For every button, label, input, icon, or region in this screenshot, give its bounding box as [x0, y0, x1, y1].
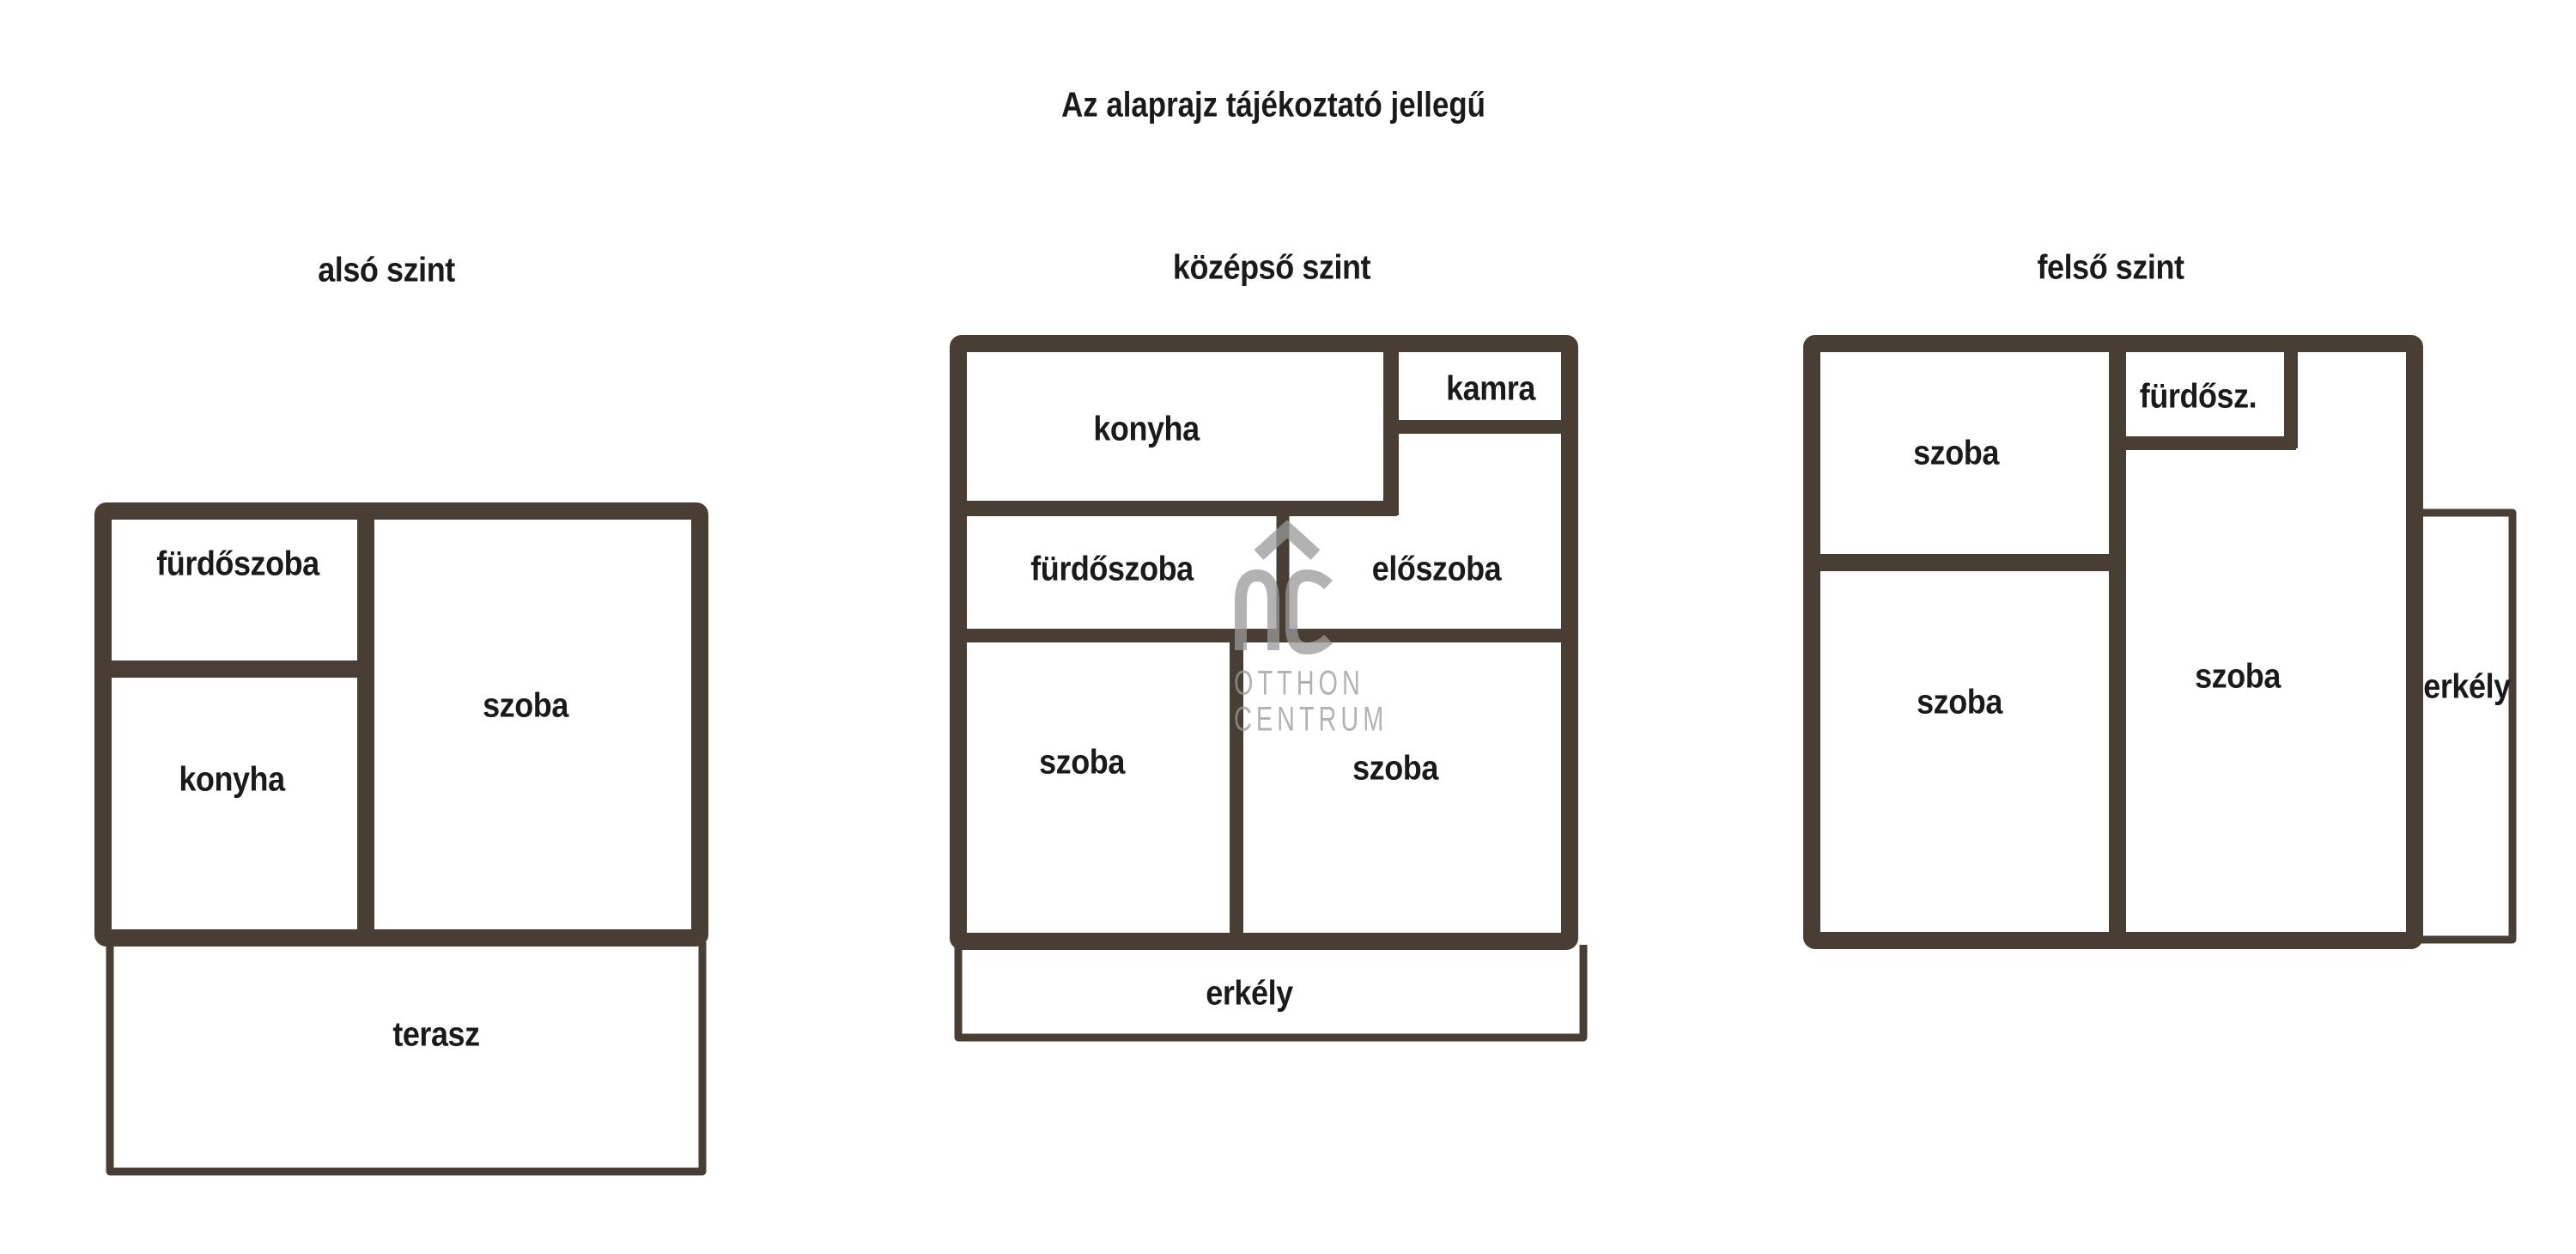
middle-erkely-wall: [958, 945, 1583, 1038]
floorplan-canvas: Az alaprajz tájékoztató jellegű: [0, 0, 2576, 1254]
floorplan-walls: [0, 0, 2576, 1254]
lower-outer-wall: [103, 511, 700, 938]
upper-floor-walls: [1805, 339, 2512, 945]
lower-terasz-wall: [110, 942, 702, 1172]
upper-erkely-wall: [2421, 513, 2512, 940]
middle-floor-walls: [951, 339, 1583, 1038]
lower-floor-walls: [99, 509, 702, 1172]
